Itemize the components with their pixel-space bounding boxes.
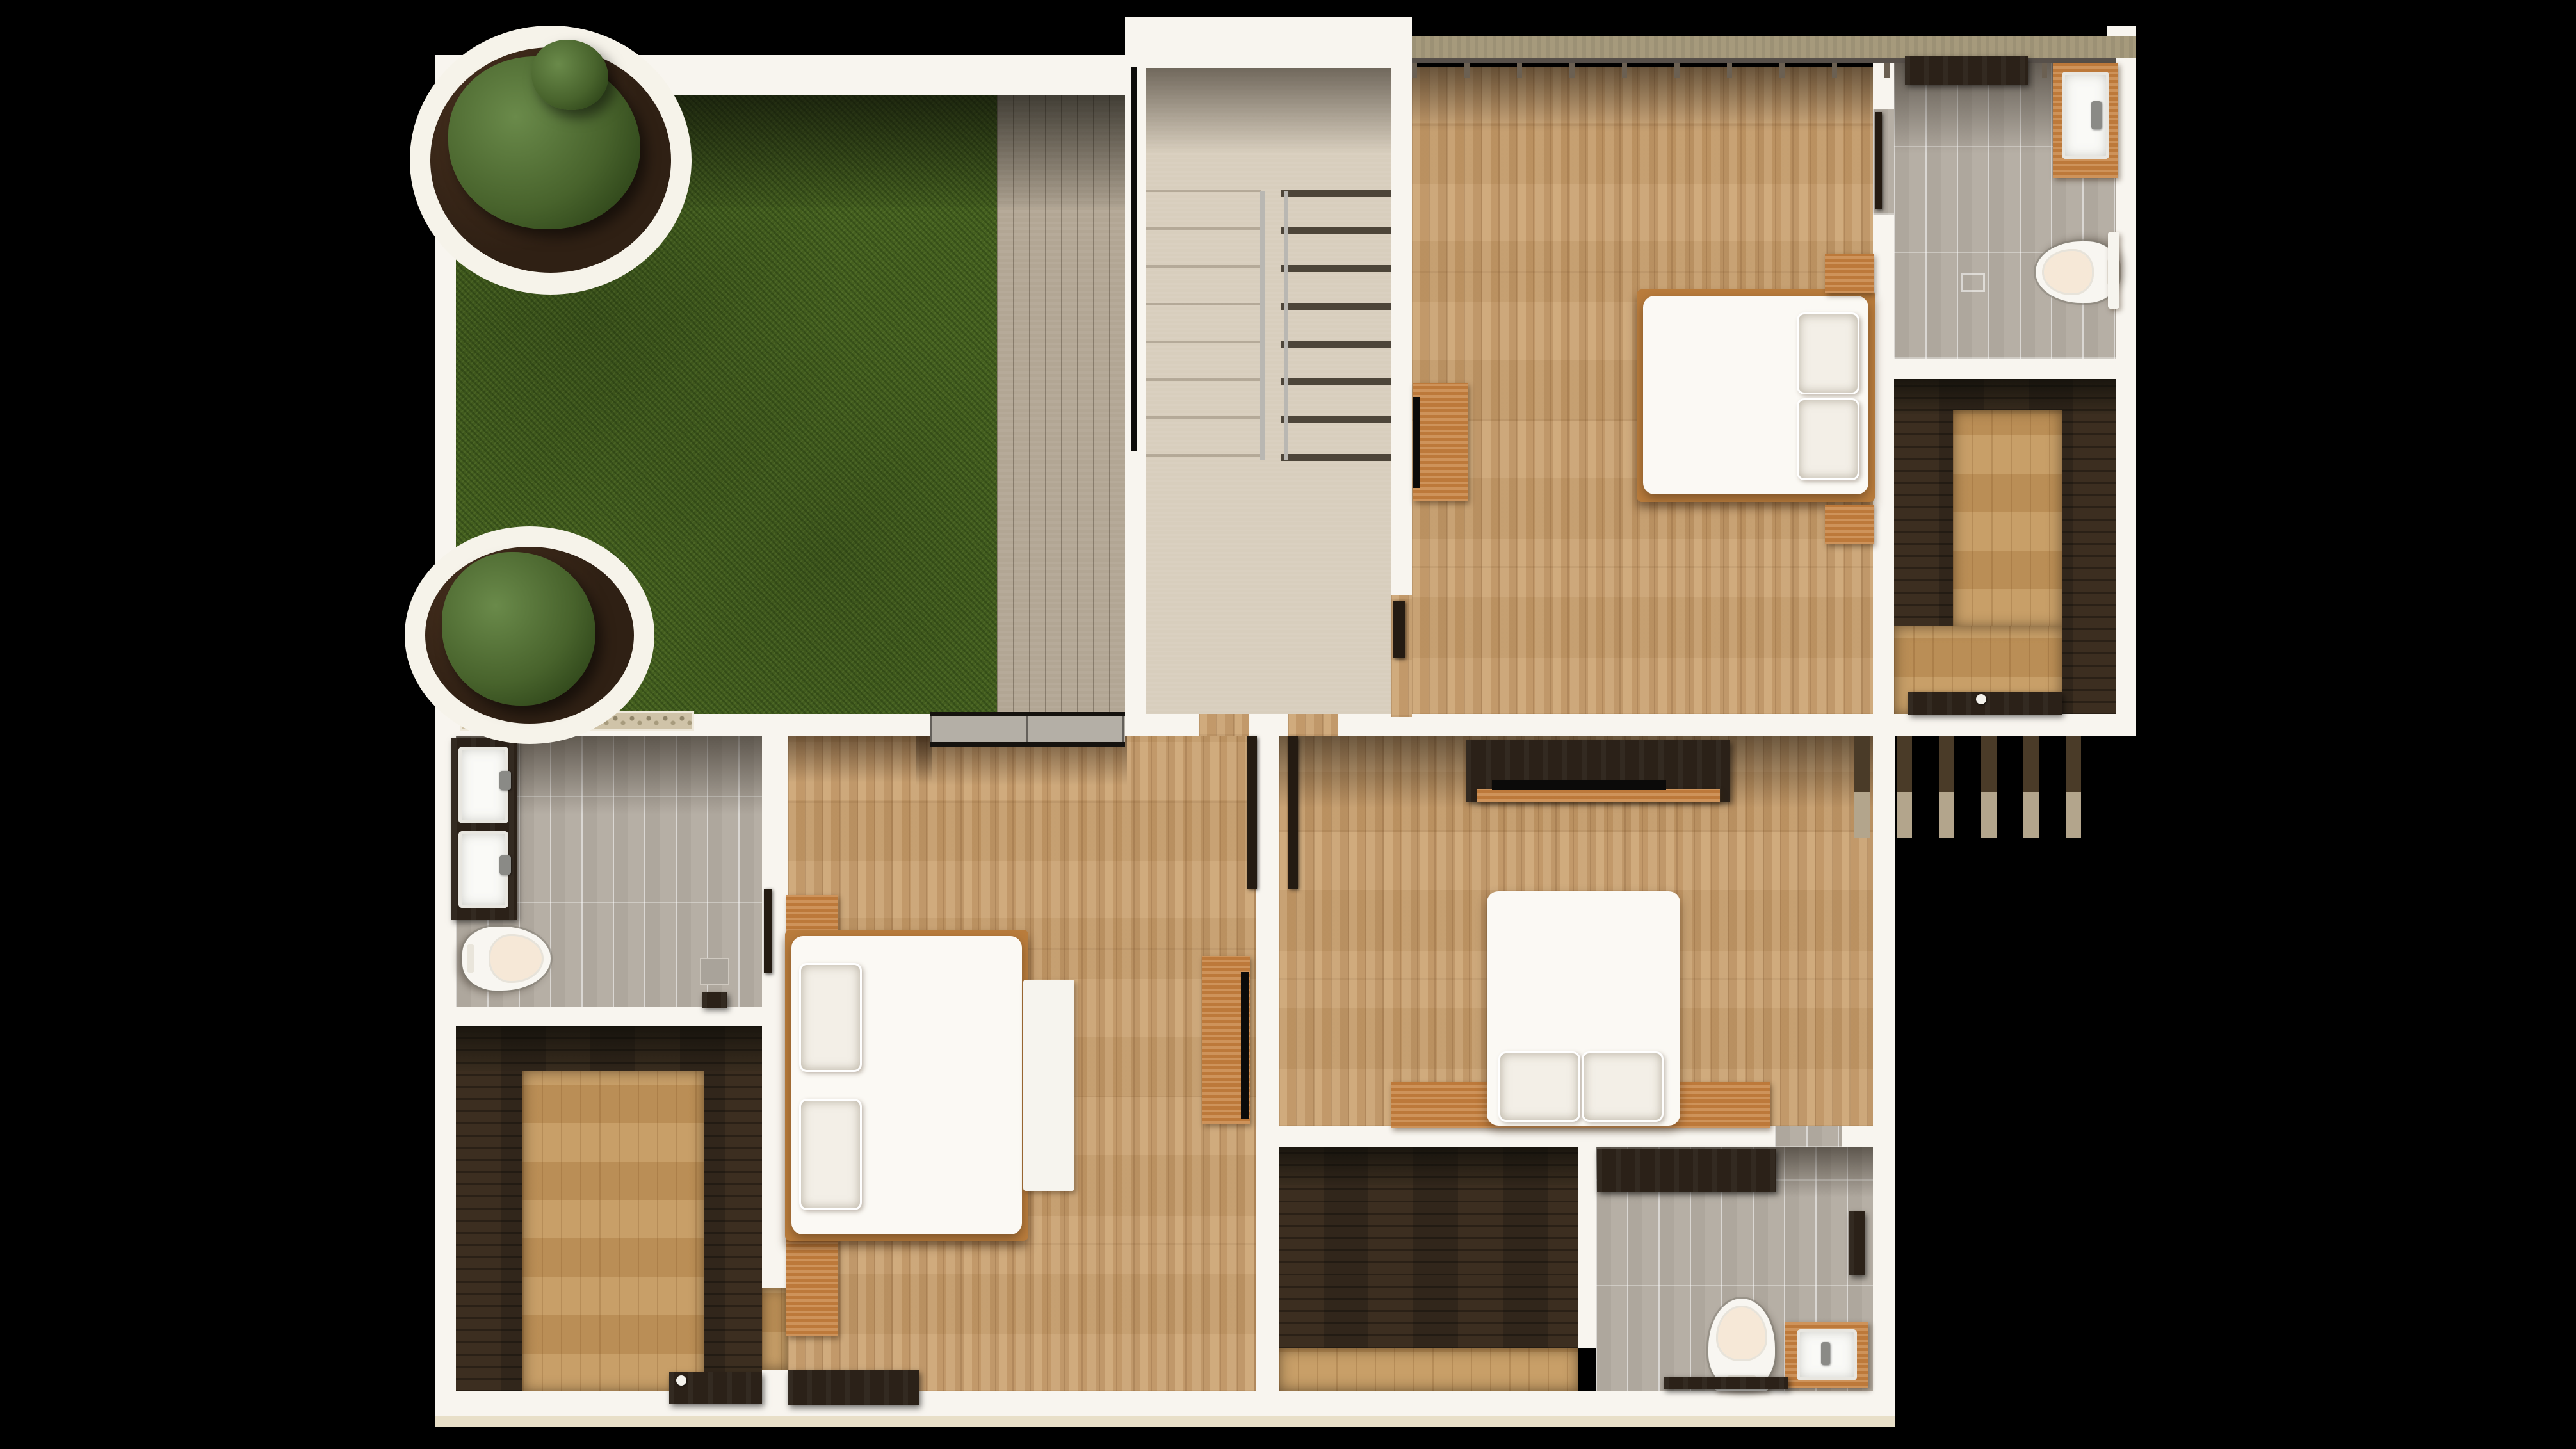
closet-mid-lane (1279, 1348, 1578, 1391)
doorway-bathroom-br (1775, 1126, 1842, 1147)
nightstand-tr-1 (1825, 254, 1874, 293)
doorway-closet-left (762, 1288, 788, 1370)
stair-steps (1281, 190, 1391, 465)
pillow-tr-2 (1797, 398, 1859, 480)
door-bedroom-tr (1393, 601, 1405, 658)
tv-bedroom-tr (1413, 397, 1420, 488)
tv-bedroom-mid (1492, 780, 1666, 790)
pillow-tr-1 (1797, 312, 1859, 394)
balcony-tan-band (1412, 36, 2136, 58)
shower-bathroom-br (1849, 1211, 1865, 1275)
wall-bathroom-left-bottom (451, 1007, 788, 1026)
pillow-bl-1 (799, 963, 862, 1072)
door-bedroom-mid (1288, 736, 1298, 889)
tank-bathroom-tr (2108, 232, 2119, 309)
door-bathroom-tr (1875, 112, 1882, 209)
bench-bl (1023, 980, 1074, 1191)
garden-deck (997, 95, 1125, 714)
edge-bottom-cream (435, 1416, 1895, 1427)
closet-mid-wardrobe (1279, 1146, 1578, 1348)
faucet-bathroom-tr (2091, 101, 2102, 129)
bottle-closet-left (676, 1375, 686, 1386)
wall-outer-right-bottom (1873, 734, 1895, 1415)
bottle-closet-tr (1976, 694, 1986, 704)
wall-bathroom-tr-bottom (1873, 359, 2136, 379)
pillow-bl-2 (799, 1099, 862, 1210)
drain-bathroom-tr (1961, 273, 1985, 292)
faucet-bathroom-left-2 (499, 855, 511, 875)
door-bedroom-bl (1247, 736, 1257, 889)
pergola-slat-3 (1939, 736, 1954, 838)
dresser-closet-tr (1908, 692, 2062, 715)
dresser-bl-bottom (788, 1370, 919, 1405)
faucet-bathroom-br (1821, 1342, 1830, 1365)
wall-closet-mid-divider (1578, 1146, 1596, 1348)
closet-tr-lane (1953, 410, 2062, 627)
sink-bathroom-tr (2062, 72, 2109, 159)
pillow-mid-1 (1498, 1051, 1580, 1122)
glass-door-track (1131, 67, 1137, 451)
stair-railing (1260, 191, 1288, 460)
nightstand-tr-2 (1825, 505, 1874, 544)
faucet-bathroom-left-1 (499, 771, 511, 790)
wall-hall-top (1125, 17, 1412, 68)
shelf-bathroom-tr (1905, 56, 2028, 85)
console-shelf-bedroom-mid (1477, 789, 1720, 802)
shelf-bathroom-br (1664, 1377, 1788, 1389)
wall-bottom (435, 1391, 1895, 1416)
pergola-slat-4 (1981, 736, 1997, 838)
tv-bl (1241, 972, 1249, 1119)
doorway-bedroom-mid (1288, 714, 1338, 736)
counter-bathroom-br (1597, 1149, 1776, 1192)
pillow-mid-2 (1582, 1051, 1664, 1122)
wall-bedrooms-divider (1256, 734, 1279, 1391)
window-deck-wall (930, 712, 1125, 747)
pergola-slat-2 (1897, 736, 1912, 838)
drain-bathroom-left (700, 958, 729, 985)
wall-outer-right-top (2116, 36, 2136, 735)
toilet-bathroom-br (1708, 1299, 1775, 1388)
pergola-slat-5 (2023, 736, 2039, 838)
hall-tile-joints (1146, 190, 1261, 465)
doorway-bedroom-bl (1199, 714, 1249, 736)
showerhead-bathroom-left (702, 992, 727, 1008)
dresser-bl-side (786, 1238, 838, 1336)
floor-plan (0, 0, 2576, 1449)
closet-left-lane (522, 1071, 704, 1392)
pergola-slat-6 (2066, 736, 2081, 838)
door-bathroom-left (764, 889, 772, 973)
dresser-bedroom-tr (1413, 383, 1468, 501)
pergola-slat-1 (1854, 736, 1870, 838)
toilet-bathroom-tr (2036, 241, 2119, 303)
